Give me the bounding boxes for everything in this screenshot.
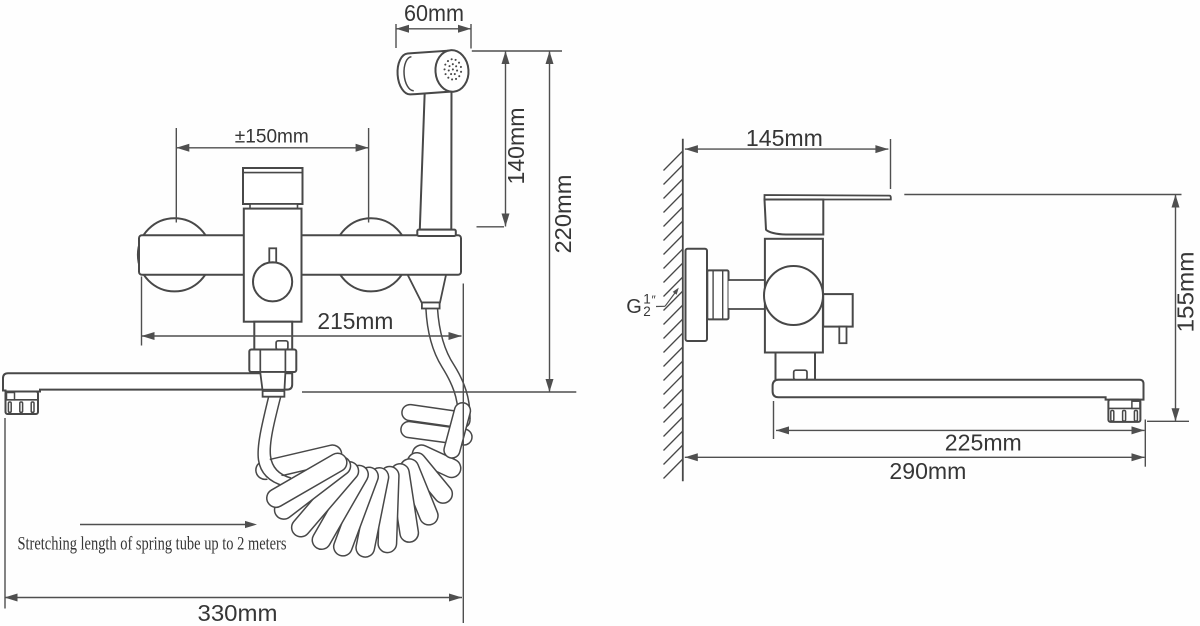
svg-text:Stretching length of spring tu: Stretching length of spring tube up to 2… [18,533,287,554]
svg-text:2: 2 [643,304,651,319]
svg-text:225mm: 225mm [945,429,1022,455]
svg-text:60mm: 60mm [404,0,464,26]
svg-text:G: G [626,296,642,318]
svg-text:155mm: 155mm [1172,252,1198,333]
svg-text:±150mm: ±150mm [235,127,309,148]
svg-text:140mm: 140mm [503,108,529,185]
svg-text:220mm: 220mm [550,175,576,254]
svg-text:290mm: 290mm [889,458,966,484]
svg-text:215mm: 215mm [317,308,393,334]
svg-text:145mm: 145mm [746,125,823,151]
svg-text:330mm: 330mm [198,600,278,626]
